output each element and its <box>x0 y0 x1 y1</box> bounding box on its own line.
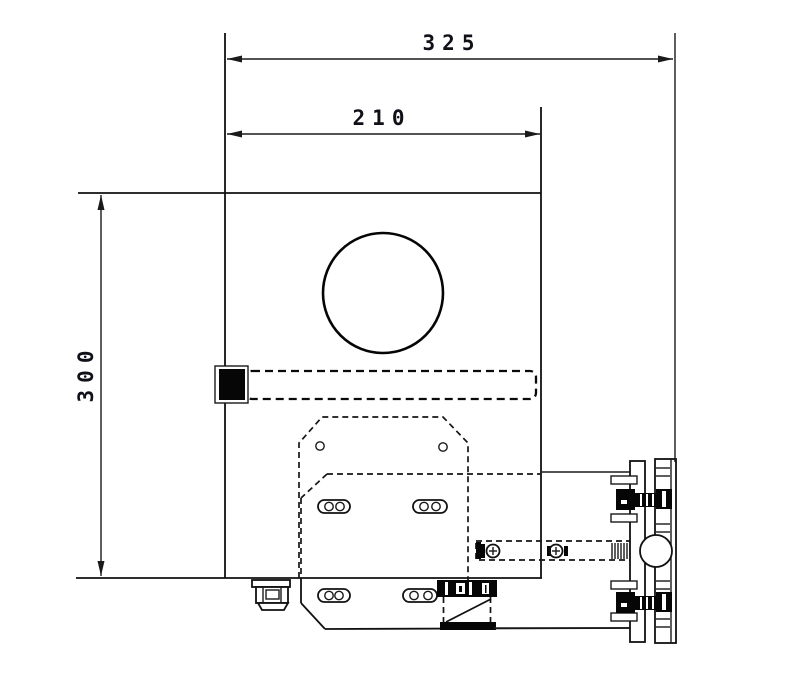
arrowhead-up <box>98 195 105 210</box>
arrowhead-down <box>98 561 105 576</box>
back-plate-outline <box>301 472 631 629</box>
main-body-outline <box>76 33 542 578</box>
rod-thread-ticks <box>612 543 630 559</box>
slotted-hole-row-upper <box>318 500 447 513</box>
slotted-hole <box>413 500 447 513</box>
arrowhead-left <box>227 56 242 63</box>
bracket-knob <box>640 535 672 567</box>
dim-label-overall-width: 325 <box>423 31 482 55</box>
dim-overall-width: 325 <box>227 31 675 462</box>
rod-screw <box>487 545 500 558</box>
diagonal-foot-box <box>440 597 631 630</box>
bolt-head <box>616 489 635 510</box>
dim-label-height: 300 <box>74 344 98 403</box>
circular-port <box>323 233 443 353</box>
screw-hole <box>316 442 324 450</box>
technical-drawing: 325 210 300 <box>0 0 800 692</box>
arrowhead-right <box>658 56 673 63</box>
screw-hole <box>439 443 447 451</box>
hidden-slot <box>246 371 536 399</box>
bolt-head <box>616 592 635 613</box>
retainer-clip <box>611 581 637 589</box>
arrowhead-left <box>227 131 242 138</box>
drawing-canvas: 325 210 300 <box>0 0 800 692</box>
dim-body-width: 210 <box>227 106 540 138</box>
retainer-clip <box>611 613 637 621</box>
slotted-hole <box>318 589 350 602</box>
dim-label-body-width: 210 <box>353 106 412 130</box>
cable-gland <box>252 580 290 610</box>
retainer-clip <box>611 476 637 484</box>
mounting-plate-upper <box>299 417 468 580</box>
slotted-hole <box>318 500 350 513</box>
slot-end-block <box>215 366 248 403</box>
slotted-hole-row-lower <box>318 589 437 602</box>
rod-screw <box>547 545 568 558</box>
clamp-block <box>437 580 497 597</box>
slotted-hole <box>403 589 437 602</box>
dim-height: 300 <box>74 195 105 576</box>
retainer-clip <box>611 514 637 522</box>
adjustment-rod <box>476 541 631 560</box>
arrowhead-right <box>525 131 540 138</box>
